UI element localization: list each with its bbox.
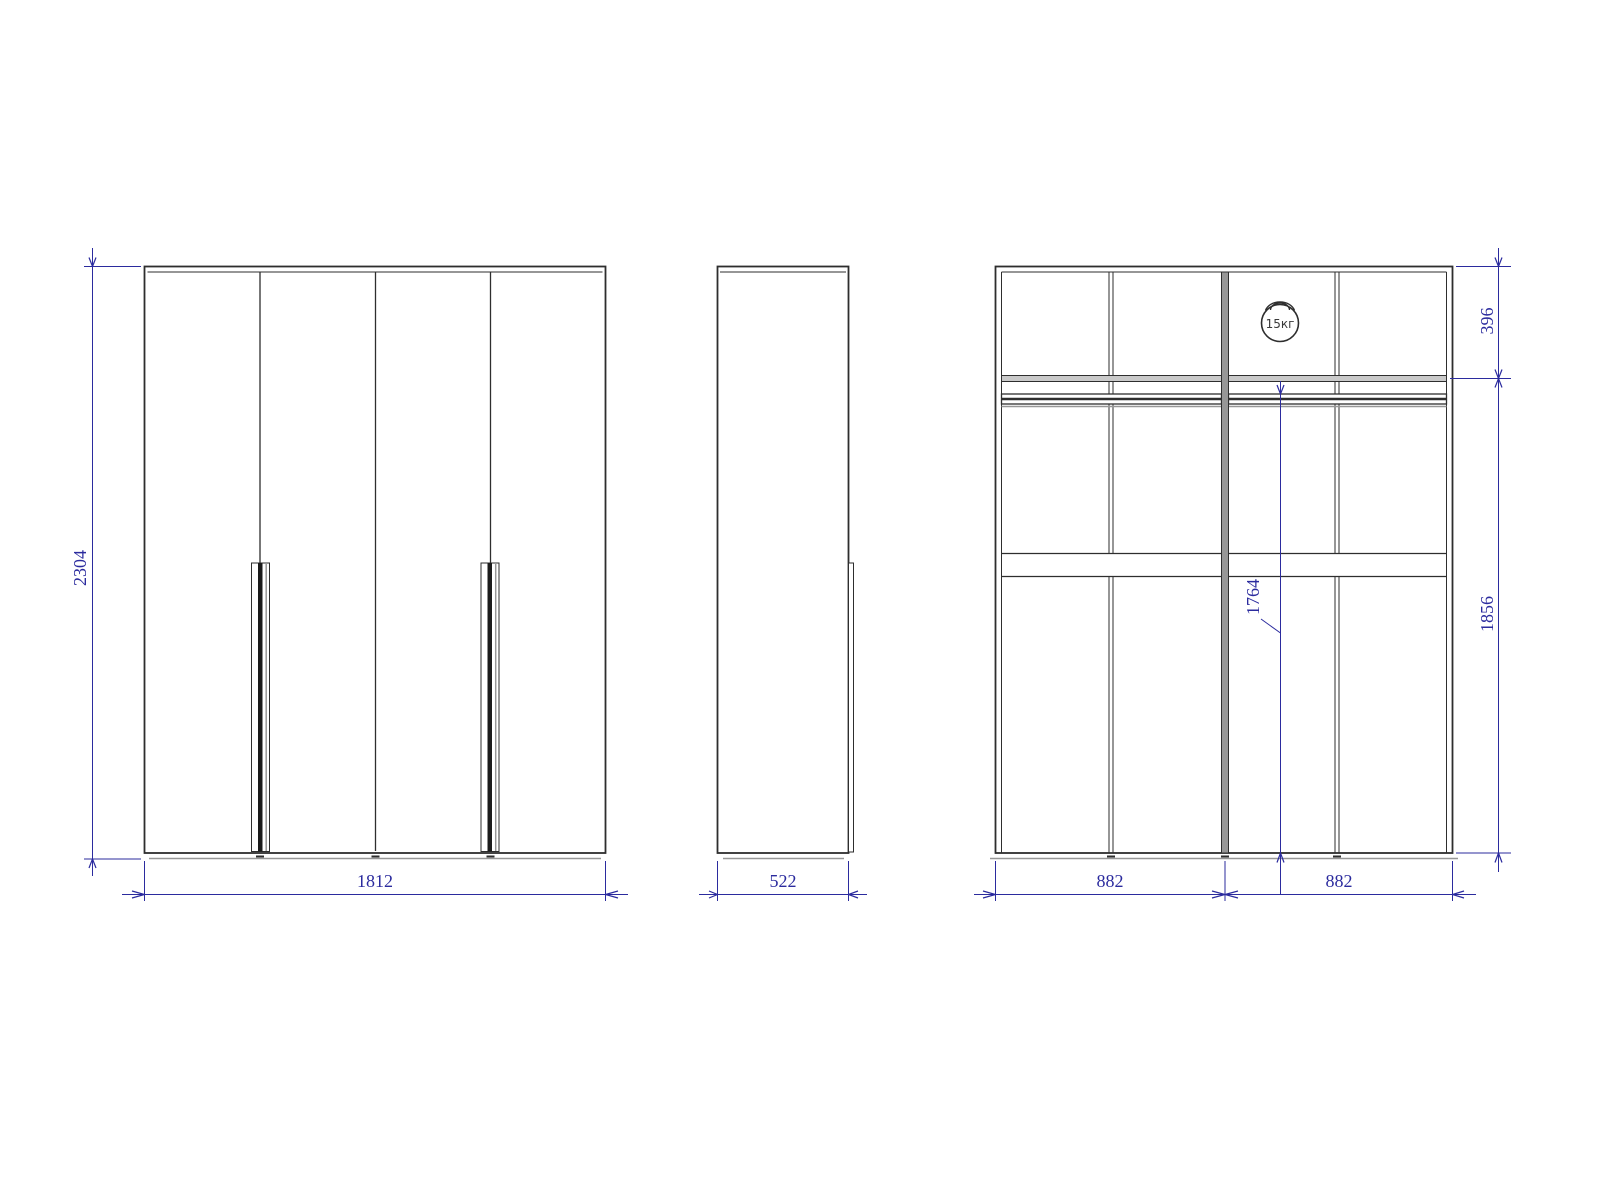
section-height-dimensions [1450, 248, 1511, 872]
front-height-label: 2304 [71, 550, 89, 586]
front-width-label: 1812 [357, 872, 393, 890]
internal-base [990, 857, 1458, 859]
hanging-rod-right [1229, 394, 1447, 404]
front-view [145, 267, 606, 859]
section-width-dimensions [974, 861, 1476, 901]
front-height-dimension [84, 248, 141, 876]
door-handle-right [481, 563, 499, 852]
door-handle-left [252, 563, 270, 852]
right-section-width-label: 882 [1326, 872, 1353, 890]
side-door-edge [849, 563, 854, 852]
shelf-load-limit-label: 15кг [1266, 318, 1295, 330]
lower-section-height-label: 1856 [1478, 596, 1496, 632]
front-base [149, 857, 601, 859]
side-view [718, 267, 854, 859]
drawing-canvas: 2304 1812 522 396 1856 1764 882 882 15кг [0, 0, 1600, 1200]
partition-center [1222, 272, 1229, 853]
side-depth-label: 522 [770, 872, 797, 890]
left-section-width-label: 882 [1097, 872, 1124, 890]
wardrobe-linework [0, 0, 1600, 1200]
rod-height-label: 1764 [1244, 579, 1262, 615]
hanging-rod-left [1002, 394, 1222, 404]
top-shelf-height-label: 396 [1478, 308, 1496, 335]
internal-view [990, 267, 1458, 859]
